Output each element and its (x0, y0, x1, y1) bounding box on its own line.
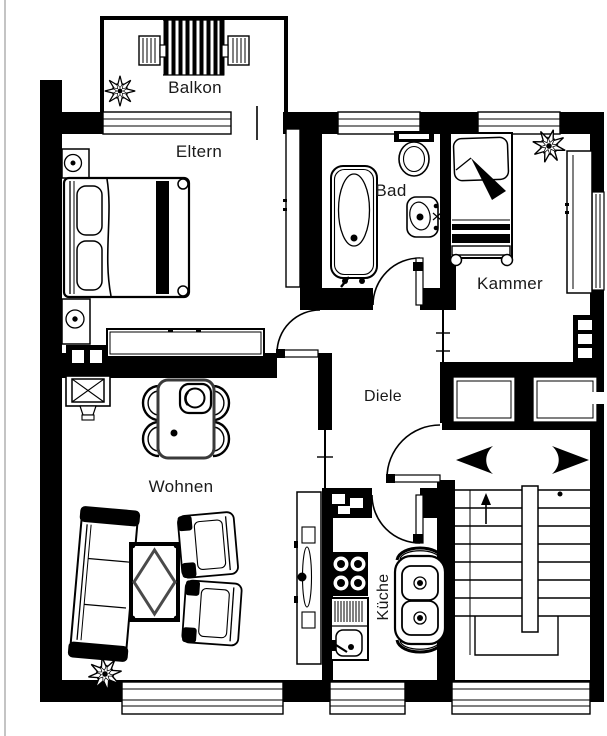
bathtub (331, 166, 377, 287)
stairwell-window (452, 682, 590, 714)
kueche-window (330, 682, 405, 714)
sink-counter (329, 598, 368, 660)
tv-unit (66, 376, 110, 420)
balkon-window (103, 112, 231, 134)
eltern-sideboard (107, 328, 264, 357)
room-label-kammer: Kammer (477, 274, 543, 294)
dining-table (143, 380, 229, 458)
room-label-eltern: Eltern (176, 142, 222, 162)
balcony-slatted-table (163, 20, 224, 75)
room-label-kueche: Küche (375, 574, 393, 621)
floor-plan-canvas: Balkon Eltern Bad Kammer Diele Wohnen Kü… (0, 0, 607, 736)
kammer-wardrobe (565, 151, 592, 293)
eltern-door (276, 310, 320, 358)
room-label-wohnen: Wohnen (149, 477, 214, 497)
room-label-bad: Bad (375, 181, 406, 201)
armchair-top (177, 512, 238, 579)
wohnen-window (122, 682, 283, 714)
toilet (394, 131, 434, 176)
kammer-opening (436, 310, 450, 362)
balcony-chair-right (222, 36, 249, 65)
armchair-bottom (182, 580, 242, 646)
wash-basin (407, 197, 441, 237)
wohnen-sideboard (294, 492, 321, 664)
kammer-window-north (478, 112, 560, 134)
floor-plan-drawing (0, 0, 607, 736)
eltern-tall-cabinet (283, 129, 300, 287)
nightstand-top (62, 149, 89, 178)
kammer-window-east (592, 192, 604, 290)
staircase (455, 486, 600, 655)
wohnen-diele-opening (317, 430, 333, 488)
double-bed (64, 178, 189, 297)
stove (331, 552, 368, 596)
plant-icon (105, 76, 135, 106)
entrance-door (386, 425, 440, 483)
direction-arrow-right (552, 446, 589, 474)
single-bed (450, 133, 513, 266)
balcony-chair-left (139, 36, 166, 65)
room-label-balkon: Balkon (168, 78, 222, 98)
kueche-table-for-two (395, 548, 445, 652)
coffee-table (131, 544, 178, 620)
direction-arrow-left (456, 446, 493, 474)
bad-window (338, 112, 420, 134)
room-label-diele: Diele (364, 388, 402, 406)
nightstand-bottom (62, 299, 90, 344)
kueche-door (372, 495, 423, 543)
